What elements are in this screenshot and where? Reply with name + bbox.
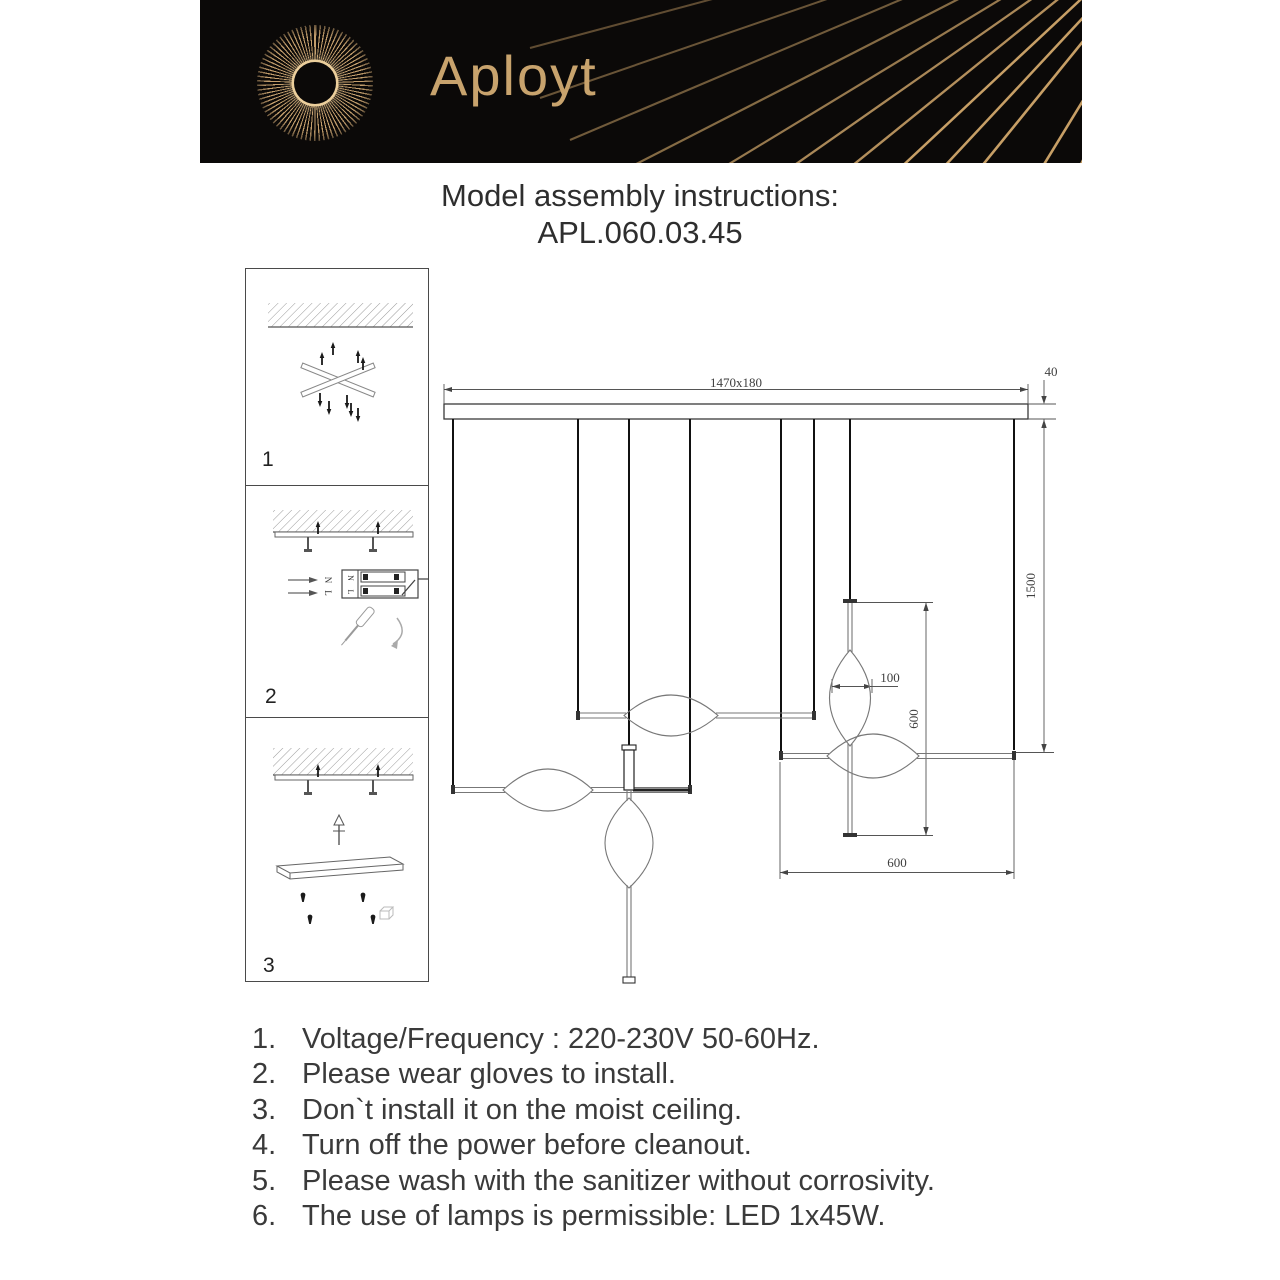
ceiling-canopy xyxy=(444,404,1028,419)
instruction-list: 1. Voltage/Frequency : 220-230V 50-60Hz.… xyxy=(252,1022,935,1234)
item-number: 6. xyxy=(252,1199,302,1234)
dim-canopy-height xyxy=(1028,380,1056,419)
dim-canopy-height-label: 40 xyxy=(1045,364,1058,379)
ceiling-hatch xyxy=(268,303,413,327)
item-text: Voltage/Frequency : 220-230V 50-60Hz. xyxy=(302,1022,820,1057)
list-item: 5. Please wash with the sanitizer withou… xyxy=(252,1164,935,1199)
tube-right-horizontal xyxy=(781,734,1014,778)
list-item: 1. Voltage/Frequency : 220-230V 50-60Hz. xyxy=(252,1022,935,1057)
ray-fan-decoration-icon xyxy=(200,0,1082,163)
item-number: 5. xyxy=(252,1164,302,1199)
item-number: 2. xyxy=(252,1057,302,1092)
step3-number: 3 xyxy=(263,954,275,977)
tube-right-vertical xyxy=(830,602,871,835)
step2-number: 2 xyxy=(265,685,277,708)
dim-canopy-label: 1470x180 xyxy=(710,375,762,390)
canopy-plate xyxy=(277,857,403,879)
page: { "header": { "brand": "Aployt" }, "titl… xyxy=(0,0,1280,1280)
terminal-l-label: L xyxy=(346,590,355,595)
small-part-cube xyxy=(380,907,393,919)
item-number: 4. xyxy=(252,1128,302,1163)
item-number: 1. xyxy=(252,1022,302,1057)
lens-diffuser xyxy=(827,734,919,778)
item-number: 3. xyxy=(252,1093,302,1128)
driver-box xyxy=(622,745,636,790)
wire-n-label: N xyxy=(323,577,333,584)
lens-diffuser xyxy=(605,798,653,888)
title-heading: Model assembly instructions: xyxy=(0,177,1280,214)
dim-horizontal-tube-label: 600 xyxy=(887,855,907,870)
list-item: 4. Turn off the power before cleanout. xyxy=(252,1128,935,1163)
dim-vertical-tube-label: 600 xyxy=(906,709,921,729)
dim-drop-label: 1500 xyxy=(1023,573,1038,599)
lens-diffuser xyxy=(624,695,718,736)
tube-end-cap xyxy=(623,977,635,983)
document-title: Model assembly instructions: APL.060.03.… xyxy=(0,177,1280,251)
cross-mounting-bracket xyxy=(301,363,375,397)
lens-diffuser xyxy=(503,769,593,811)
lift-arrow-icon xyxy=(333,815,345,845)
brand-banner: Aployt xyxy=(200,0,1082,163)
dim-lens-width-label: 100 xyxy=(880,670,900,685)
list-item: 3. Don`t install it on the moist ceiling… xyxy=(252,1093,935,1128)
model-number: APL.060.03.45 xyxy=(0,214,1280,251)
canopy-screws xyxy=(301,893,376,924)
terminal-n-label: N xyxy=(346,575,355,581)
step1-number: 1 xyxy=(262,448,274,471)
step3-diagram: 3 xyxy=(263,748,413,977)
lens-diffuser xyxy=(830,650,871,746)
item-text: Don`t install it on the moist ceiling. xyxy=(302,1093,742,1128)
item-text: Turn off the power before cleanout. xyxy=(302,1128,752,1163)
item-text: Please wash with the sanitizer without c… xyxy=(302,1164,935,1199)
bracket-legs xyxy=(308,537,373,549)
item-text: Please wear gloves to install. xyxy=(302,1057,676,1092)
wiring-diagram: N L N L xyxy=(288,570,429,598)
screwdriver-icon xyxy=(338,606,402,649)
tube-center-vertical xyxy=(605,790,653,977)
item-text: The use of lamps is permissible: LED 1x4… xyxy=(302,1199,885,1234)
tube-upper-horizontal xyxy=(578,695,814,736)
step1-diagram: 1 xyxy=(262,303,413,471)
list-item: 2. Please wear gloves to install. xyxy=(252,1057,935,1092)
ceiling-hatch xyxy=(273,748,413,775)
mounting-bar xyxy=(275,775,413,780)
step2-diagram: N L N L 2 xyxy=(265,510,429,708)
assembly-steps-panel: 1 N L N L xyxy=(245,268,429,982)
fixture-dimension-drawing: 1470x180 40 1500 600 100 600 xyxy=(440,360,1084,1020)
list-item: 6. The use of lamps is permissible: LED … xyxy=(252,1199,935,1234)
dim-vertical-tube xyxy=(856,603,933,836)
wire-l-label: L xyxy=(323,590,333,596)
ceiling-hatch xyxy=(273,510,413,532)
suspension-wires xyxy=(453,419,1014,788)
mounting-bar xyxy=(275,532,413,537)
